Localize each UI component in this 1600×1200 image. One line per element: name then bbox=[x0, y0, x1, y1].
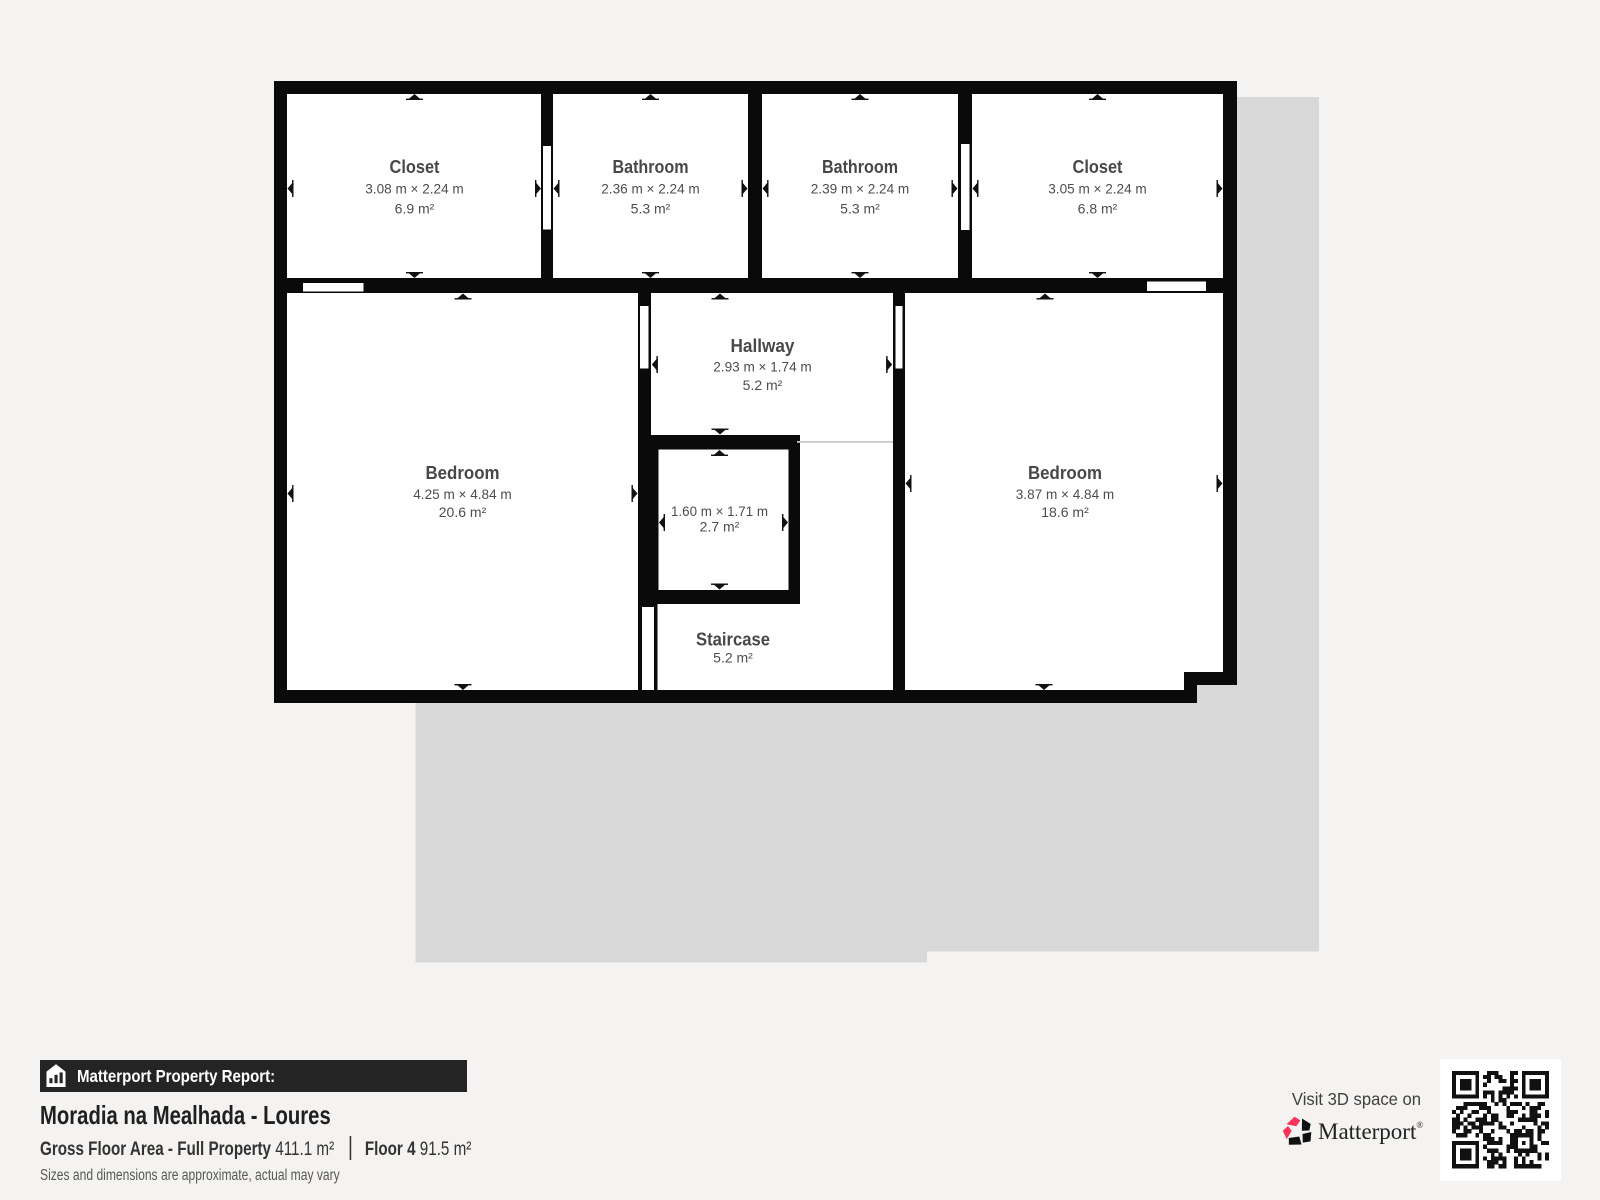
svg-text:5.3 m²: 5.3 m² bbox=[840, 200, 880, 216]
svg-text:2.36 m × 2.24 m: 2.36 m × 2.24 m bbox=[601, 180, 700, 196]
svg-text:5.2 m²: 5.2 m² bbox=[743, 377, 783, 393]
svg-text:Bathroom: Bathroom bbox=[613, 157, 689, 177]
svg-text:Bedroom: Bedroom bbox=[426, 463, 500, 483]
svg-text:6.8 m²: 6.8 m² bbox=[1078, 200, 1118, 216]
svg-text:5.3 m²: 5.3 m² bbox=[631, 200, 671, 216]
svg-text:4.25 m × 4.84 m: 4.25 m × 4.84 m bbox=[413, 486, 512, 502]
svg-text:Hallway: Hallway bbox=[731, 336, 795, 356]
svg-text:3.08 m × 2.24 m: 3.08 m × 2.24 m bbox=[365, 180, 464, 196]
svg-text:Closet: Closet bbox=[390, 157, 440, 177]
svg-text:2.7 m²: 2.7 m² bbox=[700, 519, 740, 535]
svg-text:5.2 m²: 5.2 m² bbox=[713, 650, 753, 666]
svg-text:3.05 m × 2.24 m: 3.05 m × 2.24 m bbox=[1048, 180, 1147, 196]
svg-text:6.9 m²: 6.9 m² bbox=[395, 200, 435, 216]
svg-text:1.60 m × 1.71 m: 1.60 m × 1.71 m bbox=[671, 503, 768, 519]
svg-text:Staircase: Staircase bbox=[696, 630, 770, 650]
svg-text:Bathroom: Bathroom bbox=[822, 157, 898, 177]
svg-text:2.39 m × 2.24 m: 2.39 m × 2.24 m bbox=[811, 180, 910, 196]
svg-text:2.93 m × 1.74 m: 2.93 m × 1.74 m bbox=[713, 358, 812, 374]
svg-text:18.6 m²: 18.6 m² bbox=[1041, 504, 1089, 520]
svg-text:Bedroom: Bedroom bbox=[1028, 463, 1102, 483]
svg-text:20.6 m²: 20.6 m² bbox=[439, 504, 487, 520]
svg-text:3.87 m × 4.84 m: 3.87 m × 4.84 m bbox=[1016, 486, 1115, 502]
svg-text:Closet: Closet bbox=[1073, 157, 1123, 177]
